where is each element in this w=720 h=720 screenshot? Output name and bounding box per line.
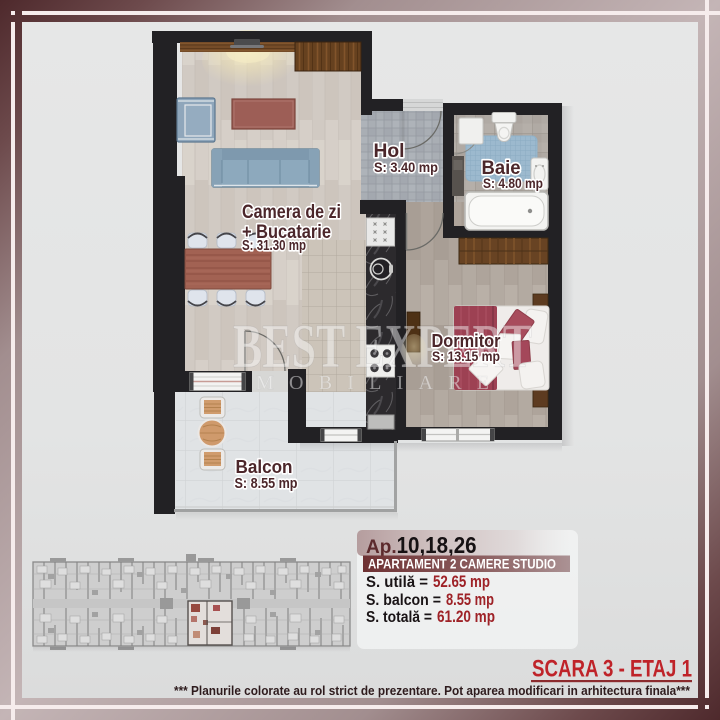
- svg-text:Balcon: Balcon: [236, 457, 293, 477]
- svg-text:S: 13.15 mp: S: 13.15 mp: [432, 348, 500, 364]
- svg-text:S. totală =: S. totală =: [366, 609, 432, 626]
- svg-text:*** Planurile colorate au rol: *** Planurile colorate au rol strict de …: [174, 684, 690, 698]
- svg-text:S: 3.40 mp: S: 3.40 mp: [374, 159, 438, 175]
- svg-text:S. balcon =: S. balcon =: [366, 592, 441, 609]
- svg-text:52.65 mp: 52.65 mp: [433, 573, 490, 591]
- svg-text:S: 8.55 mp: S: 8.55 mp: [235, 476, 298, 492]
- svg-text:S: 4.80 mp: S: 4.80 mp: [483, 175, 543, 191]
- svg-text:SCARA 3 - ETAJ 1: SCARA 3 - ETAJ 1: [532, 656, 692, 683]
- svg-text:61.20 mp: 61.20 mp: [437, 608, 495, 626]
- svg-text:8.55 mp: 8.55 mp: [446, 591, 494, 609]
- svg-text:S: 31.30 mp: S: 31.30 mp: [242, 237, 306, 254]
- svg-text:S. utilă =: S. utilă =: [366, 574, 428, 591]
- svg-text:APARTAMENT 2 CAMERE STUDIO: APARTAMENT 2 CAMERE STUDIO: [368, 556, 556, 572]
- svg-text:MOBILIARE: MOBILIARE: [256, 372, 489, 394]
- svg-text:Camera de zi: Camera de zi: [242, 202, 341, 223]
